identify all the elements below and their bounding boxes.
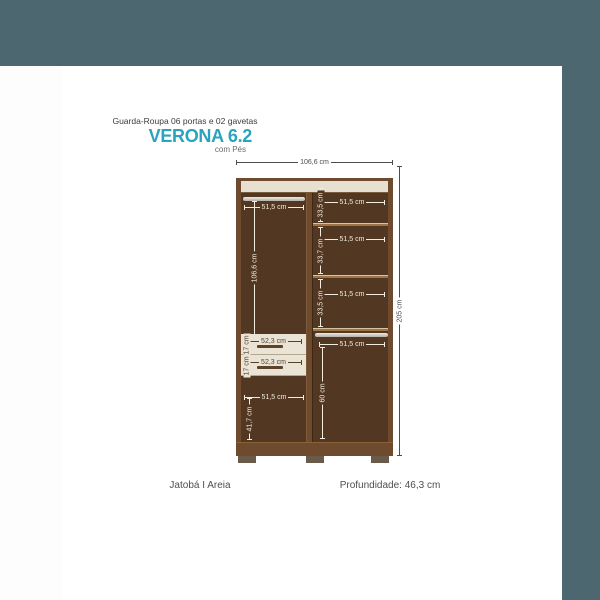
dim-drawer-1-width: 52,3 cm — [245, 337, 302, 346]
product-variant-label: com Pés — [112, 145, 246, 154]
dim-right-s1-width: 51,5 cm — [319, 198, 385, 207]
right-shelf-1 — [313, 223, 388, 226]
dim-overall-height: 205 cm — [395, 166, 405, 456]
leg-right — [371, 456, 389, 463]
card-left-margin — [0, 66, 62, 600]
leg-left — [238, 456, 256, 463]
center-divider-panel — [306, 193, 313, 442]
product-type-label: Guarda-Roupa 06 portas e 02 gavetas — [112, 116, 258, 126]
dim-right-s3-width: 51,5 cm — [319, 290, 385, 299]
wardrobe-top-panel — [241, 181, 388, 193]
right-shelf-3 — [313, 328, 388, 331]
page-band-right — [562, 0, 600, 600]
wardrobe-base — [236, 442, 393, 456]
leg-center — [306, 456, 324, 463]
dim-left-bottom-height: 41,7 cm — [245, 398, 255, 440]
right-hanging-rod — [315, 333, 388, 337]
dim-right-s4-height: 60 cm — [318, 347, 328, 439]
dim-right-s4-width: 51,5 cm — [319, 340, 385, 349]
dim-right-s2-width: 51,5 cm — [319, 235, 385, 244]
finish-label: Jatobá I Areia — [125, 480, 275, 491]
dim-drawer-2-height: 17 cm — [242, 356, 252, 375]
product-card: Guarda-Roupa 06 portas e 02 gavetas VERO… — [0, 0, 600, 600]
page-band-top — [0, 0, 600, 66]
right-shelf-2 — [313, 275, 388, 278]
dim-drawer-1-height: 17 cm — [242, 335, 252, 354]
dim-right-s2-height: 33,7 cm — [316, 227, 326, 274]
dim-right-s1-height: 33,5 cm — [316, 188, 326, 222]
dim-right-s3-height: 33,5 cm — [316, 279, 326, 327]
dim-left-hanging-height: 106,6 cm — [250, 201, 260, 335]
dim-drawer-2-width: 52,3 cm — [245, 358, 302, 367]
depth-label: Profundidade: 46,3 cm — [315, 480, 465, 491]
dim-overall-width: 106,6 cm — [236, 158, 393, 167]
wardrobe-interior — [241, 193, 388, 442]
product-name-title: VERONA 6.2 — [112, 126, 252, 147]
